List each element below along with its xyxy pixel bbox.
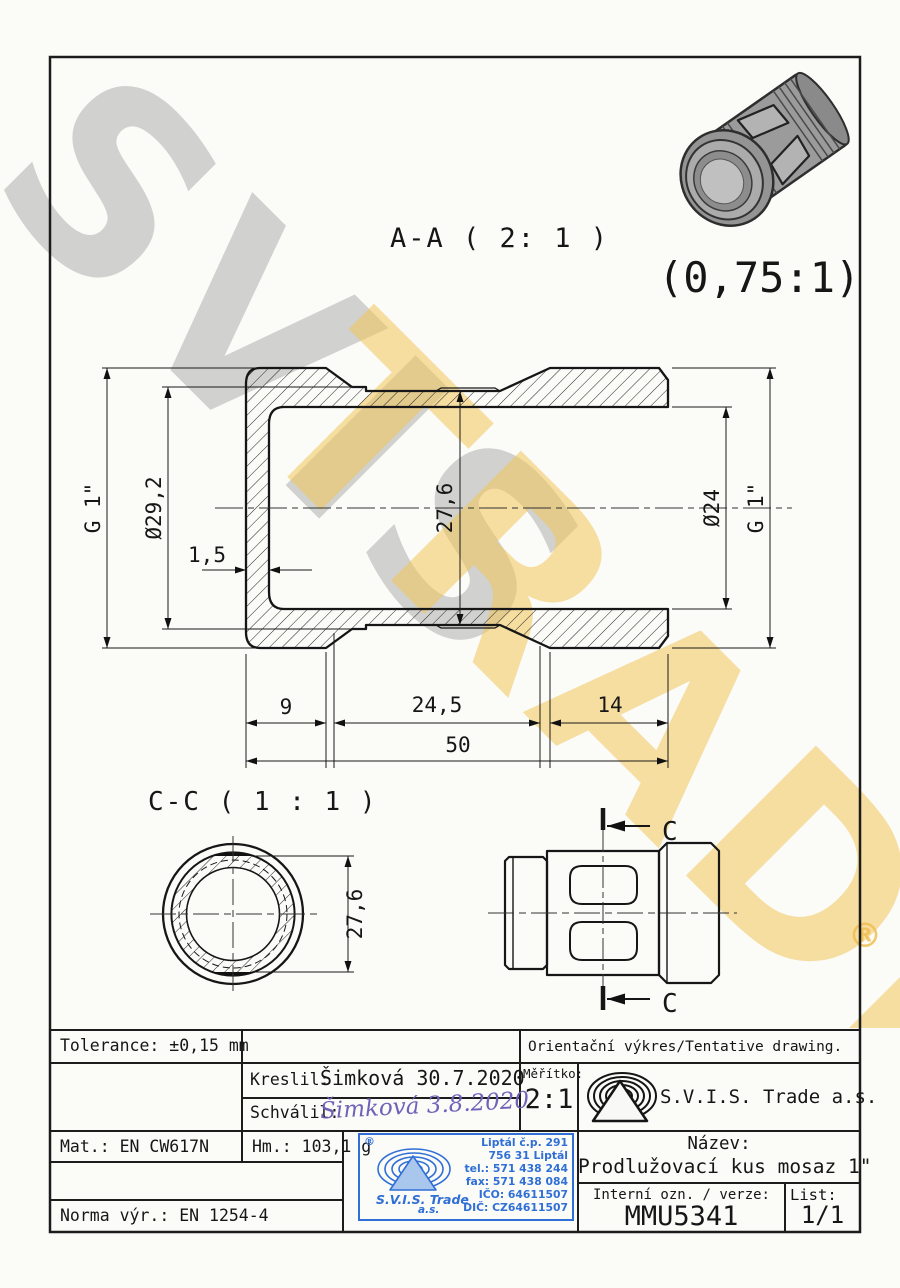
- side-view: C C: [488, 808, 737, 1019]
- stamp-address-line: 756 31 Liptál: [463, 1150, 568, 1163]
- part-title: Prodlužovací kus mosaz 1": [578, 1155, 860, 1178]
- stamp-company-suffix: a.s.: [418, 1204, 439, 1216]
- dim-d24: Ø24: [700, 489, 724, 527]
- section-cc-view: 27,6: [150, 836, 367, 994]
- dim-27-6: 27,6: [433, 483, 457, 534]
- render-scale-label: (0,75:1): [658, 253, 860, 302]
- part-3d-render: [662, 64, 861, 244]
- kreslil-value: Šimková 30.7.2020: [320, 1066, 525, 1090]
- stamp-address-line: tel.: 571 438 244: [463, 1163, 568, 1176]
- company-name: S.V.I.S. Trade a.s.: [660, 1086, 877, 1108]
- company-stamp: ® S.V.I.S. Trade a.s. Liptál č.p. 291 75…: [358, 1133, 574, 1221]
- tolerance-field: Tolerance: ±0,15 mm: [60, 1036, 249, 1055]
- stamp-address-line: DIČ: CZ64611507: [463, 1202, 568, 1215]
- cut-label-c-bottom: C: [662, 989, 678, 1019]
- weight-field: Hm.: 103,1 g: [252, 1137, 371, 1156]
- dim-g1-left: G 1": [81, 483, 105, 534]
- material-field: Mat.: EN CW617N: [60, 1137, 209, 1156]
- dim-50: 50: [445, 733, 470, 757]
- section-cc-label: C-C ( 1 : 1 ): [148, 787, 378, 817]
- stamp-address-line: fax: 571 438 084: [463, 1176, 568, 1189]
- company-logo-icon: [588, 1073, 656, 1121]
- dim-24-5: 24,5: [412, 693, 463, 717]
- tentative-note: Orientační výkres/Tentative drawing.: [528, 1039, 842, 1055]
- norm-field: Norma výr.: EN 1254-4: [60, 1206, 269, 1225]
- sheet-number: 1/1: [785, 1201, 860, 1229]
- dim-14: 14: [597, 693, 622, 717]
- nazev-label: Název:: [578, 1134, 860, 1154]
- dim-g1-right: G 1": [744, 483, 768, 534]
- meritko-value: 2:1: [520, 1084, 578, 1115]
- drawing-sheet: SVIS TRADE ® (0,75:1: [0, 0, 900, 1288]
- drawing-number: MMU5341: [578, 1201, 785, 1232]
- cut-label-c-top: C: [662, 817, 678, 847]
- dim-1-5: 1,5: [188, 543, 226, 567]
- meritko-label: Měřítko:: [523, 1066, 583, 1081]
- stamp-logo-icon: [366, 1147, 466, 1195]
- stamp-address: Liptál č.p. 291 756 31 Liptál tel.: 571 …: [463, 1137, 568, 1214]
- dim-d29-2: Ø29,2: [142, 476, 166, 539]
- dim-cc-27-6: 27,6: [343, 889, 367, 940]
- stamp-address-line: Liptál č.p. 291: [463, 1137, 568, 1150]
- stamp-address-line: IČO: 64611507: [463, 1189, 568, 1202]
- dim-9: 9: [280, 695, 293, 719]
- kreslil-label: Kreslil:: [250, 1070, 329, 1089]
- section-aa-label: A-A ( 2: 1 ): [390, 223, 609, 254]
